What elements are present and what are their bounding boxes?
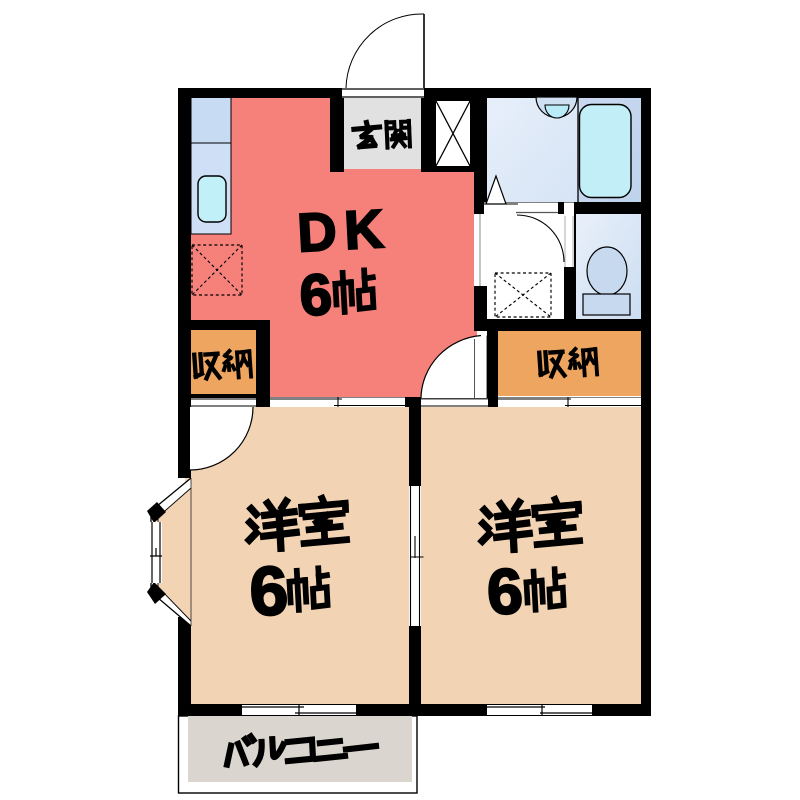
svg-text:6: 6 — [298, 262, 334, 329]
svg-text:6: 6 — [485, 555, 524, 629]
svg-text:DK: DK — [296, 199, 393, 264]
svg-text:6: 6 — [248, 552, 290, 631]
